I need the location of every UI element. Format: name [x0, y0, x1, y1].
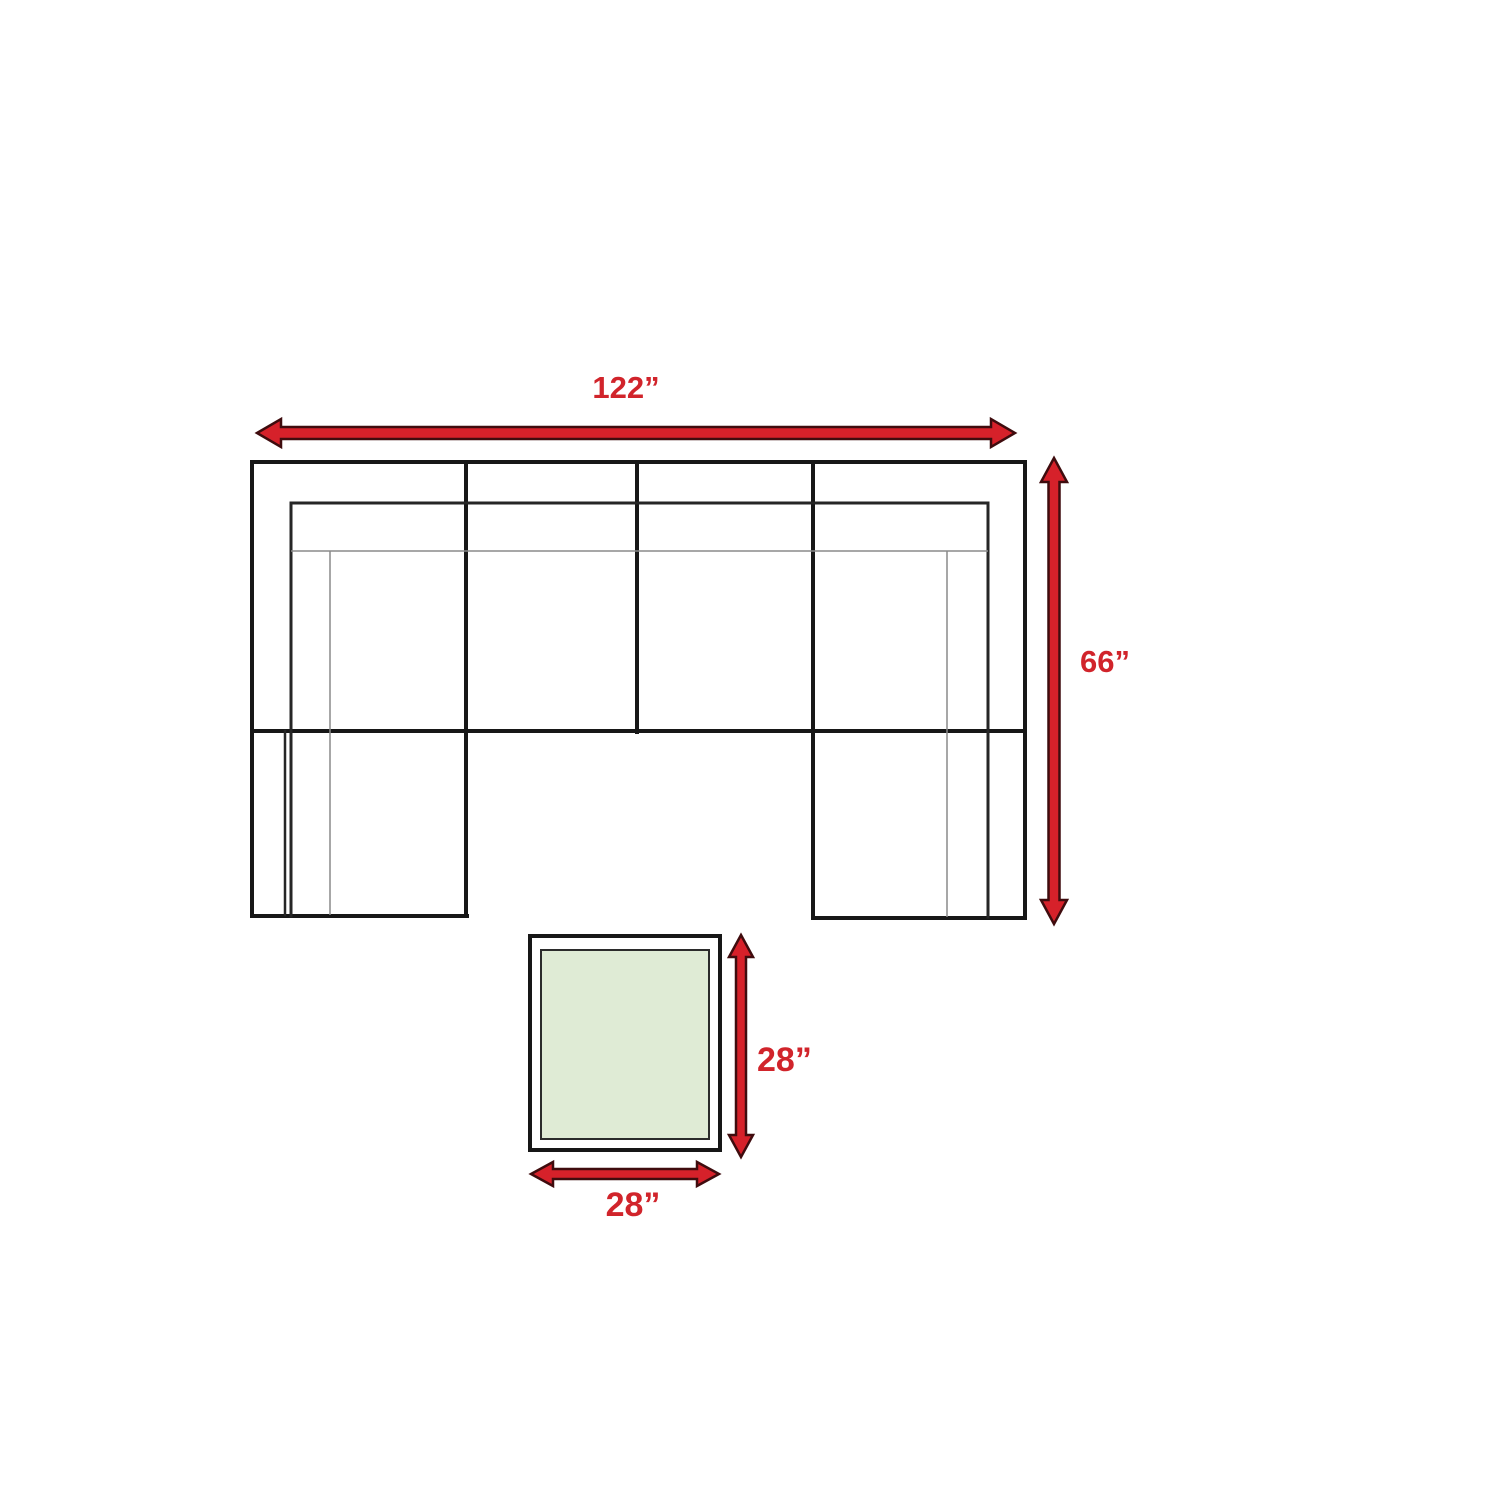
sectional-sofa-dimension-diagram: 122” 66” 28” 28” [0, 0, 1500, 1500]
dimension-diagram-page: 122” 66” 28” 28” [0, 0, 1500, 1500]
sofa-depth-label: 66” [1080, 644, 1130, 679]
table-depth-label: 28” [757, 1041, 812, 1079]
coffee-table-top-view [530, 936, 720, 1150]
sofa-depth-arrow [1041, 458, 1067, 924]
sofa-backrest-armrest-inner-line [291, 503, 988, 917]
table-depth-arrow [729, 935, 753, 1157]
sofa-cushion-seams [291, 551, 988, 917]
sofa-top-view [252, 462, 1025, 918]
sofa-width-label: 122” [592, 370, 659, 405]
table-width-arrow [531, 1162, 719, 1186]
sofa-width-arrow [257, 419, 1015, 447]
table-surface [541, 950, 709, 1139]
table-width-label: 28” [606, 1186, 661, 1224]
